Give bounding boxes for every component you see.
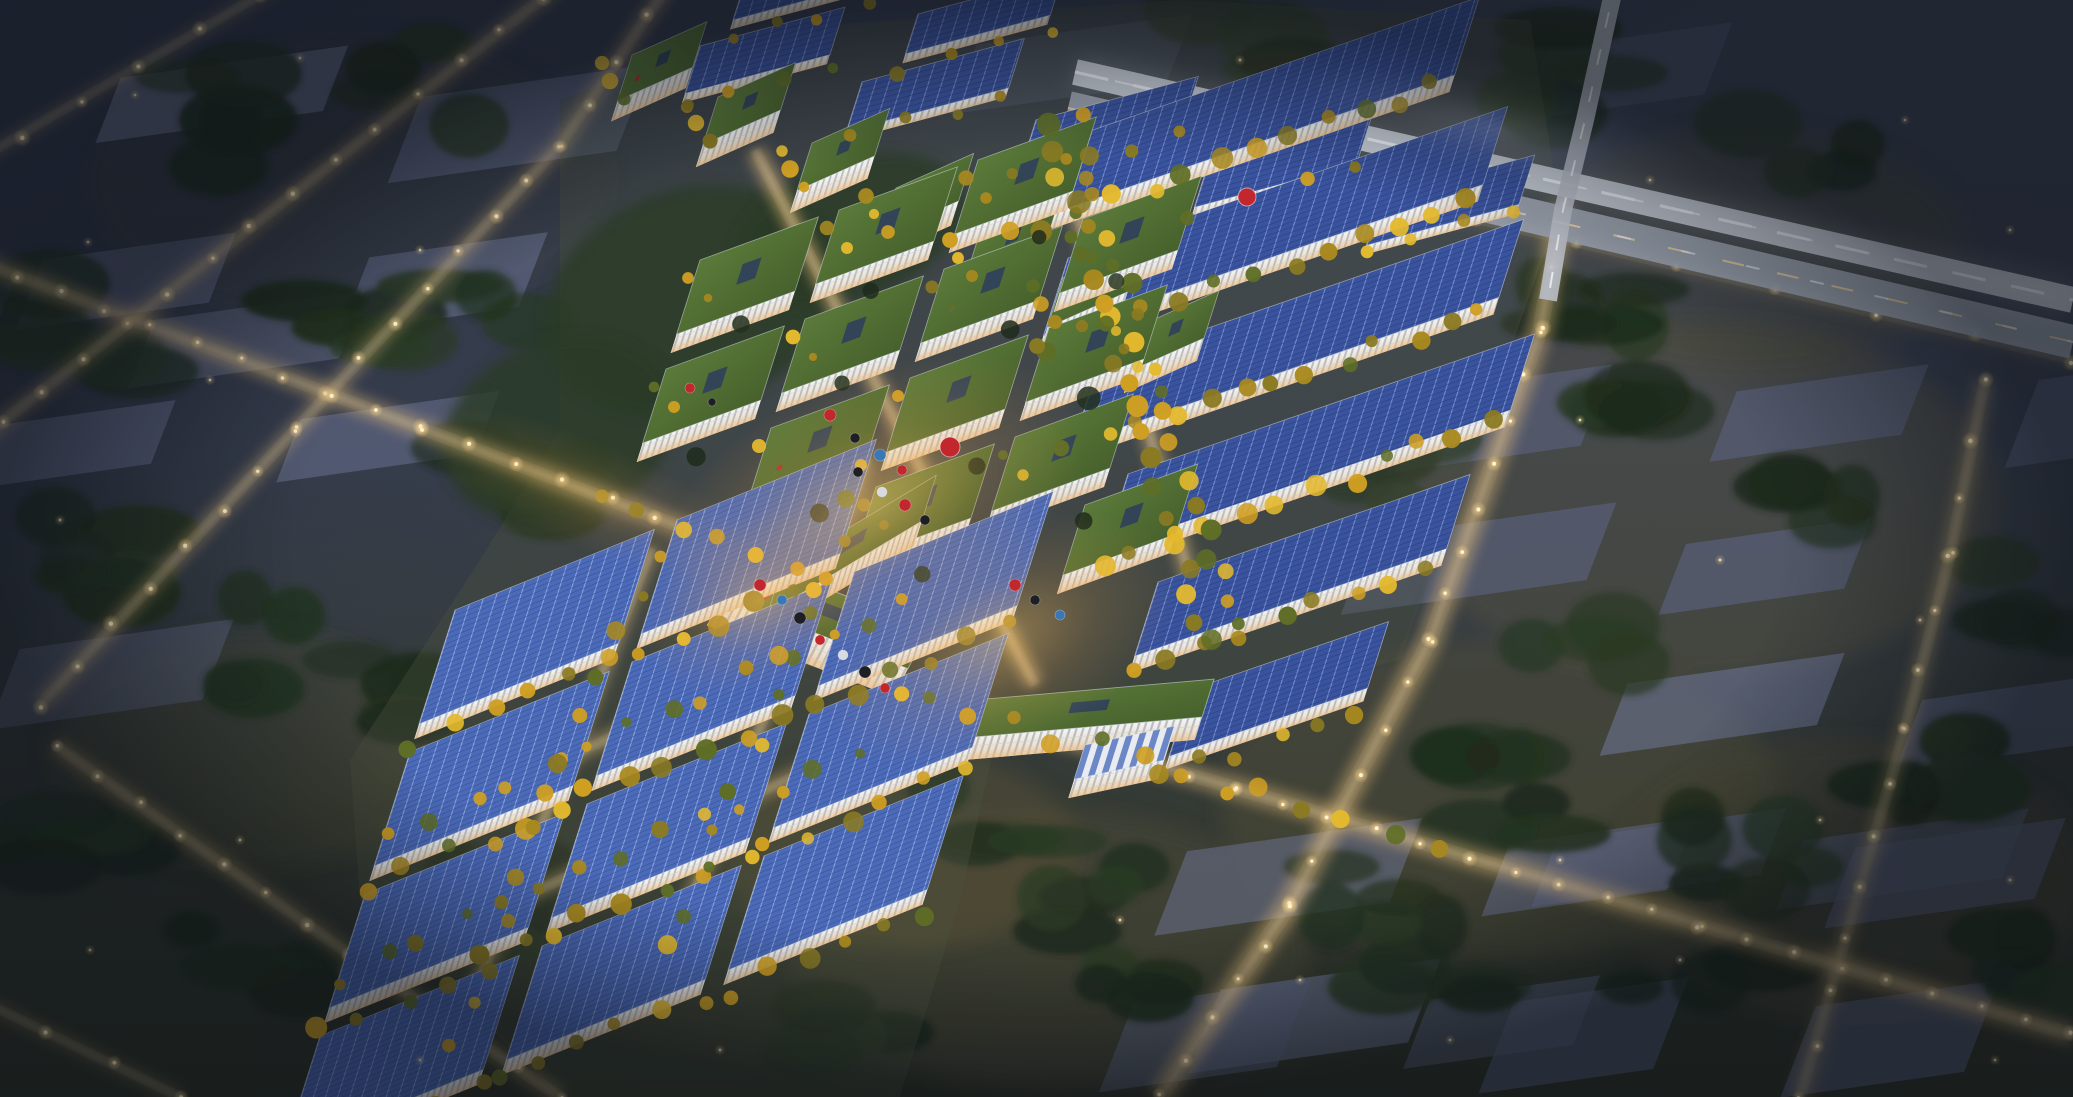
aerial-rendering-industrial-park <box>0 0 2073 1097</box>
vignette <box>0 0 2073 1097</box>
scene-canvas <box>0 0 2073 1097</box>
